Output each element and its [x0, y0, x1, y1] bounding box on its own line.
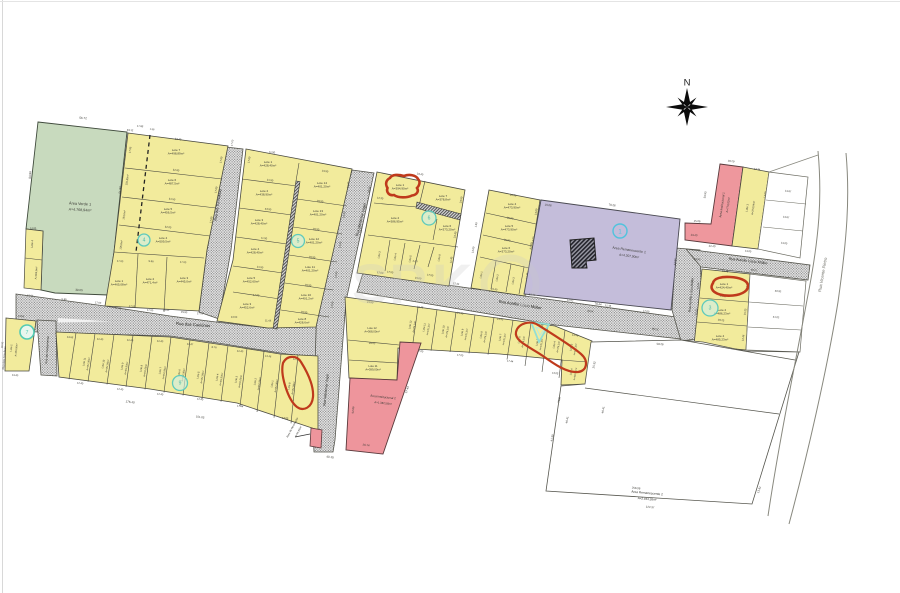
svg-text:A=456,5m²: A=456,5m²	[161, 210, 176, 214]
svg-text:A=428,40m²: A=428,40m²	[260, 163, 276, 167]
svg-text:A=473,90m²: A=473,90m²	[501, 227, 517, 231]
svg-text:22.40: 22.40	[709, 244, 716, 248]
svg-text:26.00: 26.00	[369, 341, 376, 346]
svg-text:11.45: 11.45	[265, 318, 272, 322]
svg-text:33.12: 33.12	[127, 128, 134, 133]
svg-text:40.15: 40.15	[326, 455, 334, 460]
svg-text:A=401,20m²: A=401,20m²	[306, 240, 322, 244]
svg-text:A=428,40m²: A=428,40m²	[251, 221, 267, 225]
svg-text:52.60: 52.60	[173, 168, 180, 173]
svg-text:A=401,20m²: A=401,20m²	[314, 184, 330, 188]
svg-text:12.47: 12.47	[187, 342, 194, 346]
svg-text:84.96: 84.96	[28, 171, 33, 179]
svg-text:122.37: 122.37	[646, 505, 655, 510]
svg-text:256.96: 256.96	[632, 486, 641, 491]
svg-text:Lote 1: Lote 1	[9, 344, 14, 352]
svg-text:12.40: 12.40	[157, 339, 164, 343]
svg-text:17.00: 17.00	[115, 306, 122, 310]
svg-text:18.29: 18.29	[728, 159, 736, 164]
svg-text:A=509,5m²: A=509,5m²	[156, 239, 171, 243]
svg-text:14.67: 14.67	[785, 189, 792, 194]
svg-text:17.00: 17.00	[147, 308, 154, 312]
svg-text:3: 3	[709, 306, 712, 312]
svg-text:14.00: 14.00	[231, 315, 238, 319]
svg-text:11.50: 11.50	[261, 236, 268, 241]
svg-text:A=378,8m²: A=378,8m²	[436, 197, 451, 201]
svg-text:58.26: 58.26	[656, 342, 664, 347]
svg-text:5: 5	[297, 239, 300, 245]
svg-text:A=498,89m²: A=498,89m²	[168, 151, 184, 155]
svg-text:A=373,20m²: A=373,20m²	[439, 227, 455, 231]
svg-text:39.65: 39.65	[75, 288, 83, 292]
svg-text:A=438,90m²: A=438,90m²	[256, 192, 272, 196]
svg-text:Lote 4: Lote 4	[30, 239, 35, 247]
svg-text:17.00: 17.00	[95, 300, 102, 304]
svg-text:K: K	[432, 252, 472, 315]
svg-text:12.40: 12.40	[237, 349, 244, 353]
svg-text:A=401,2m²: A=401,2m²	[299, 296, 314, 300]
svg-text:A=424,40m²: A=424,40m²	[716, 285, 732, 289]
svg-text:A=428,40m²: A=428,40m²	[247, 250, 263, 254]
svg-text:51.50: 51.50	[169, 197, 176, 202]
svg-text:13.67: 13.67	[783, 215, 790, 220]
svg-text:15.90: 15.90	[181, 310, 188, 314]
svg-text:A=471,4m²: A=471,4m²	[143, 280, 158, 284]
svg-text:40.92: 40.92	[775, 289, 782, 294]
svg-text:12.40: 12.40	[97, 337, 104, 341]
svg-text:26.23: 26.23	[718, 318, 725, 323]
svg-text:17.00: 17.00	[197, 311, 204, 315]
svg-text:N: N	[684, 78, 691, 89]
svg-text:17.60: 17.60	[27, 293, 34, 297]
svg-text:12.40: 12.40	[127, 338, 134, 342]
svg-text:4: 4	[143, 238, 146, 244]
svg-text:A=485,23m²: A=485,23m²	[712, 337, 728, 341]
svg-text:17.83: 17.83	[137, 124, 144, 129]
svg-text:7: 7	[26, 330, 29, 336]
svg-text:52.86: 52.86	[351, 406, 356, 414]
svg-text:15.06: 15.06	[694, 219, 701, 223]
svg-text:14.00: 14.00	[745, 249, 752, 254]
svg-text:14.00: 14.00	[781, 241, 788, 246]
svg-text:17.00: 17.00	[180, 260, 187, 264]
svg-text:17.00: 17.00	[129, 304, 136, 308]
svg-text:23.40: 23.40	[691, 233, 698, 237]
svg-text:13.40: 13.40	[12, 373, 19, 377]
svg-text:9.36: 9.36	[61, 297, 67, 301]
svg-text:14.00: 14.00	[30, 227, 37, 230]
svg-text:A=452,60m²: A=452,60m²	[243, 279, 259, 283]
svg-text:9.36: 9.36	[148, 259, 154, 263]
svg-text:A=428,6m²: A=428,6m²	[295, 320, 310, 324]
svg-text:A=473,90m²: A=473,90m²	[504, 205, 520, 209]
svg-text:15.90: 15.90	[163, 308, 170, 312]
svg-text:16.46: 16.46	[722, 269, 729, 274]
svg-text:8.76: 8.76	[211, 345, 217, 349]
svg-text:52.00: 52.00	[165, 225, 172, 230]
svg-text:14.63: 14.63	[67, 335, 74, 339]
svg-text:53.40: 53.40	[175, 137, 182, 142]
svg-text:A=394,90m²: A=394,90m²	[392, 186, 408, 190]
svg-text:A=401,20m²: A=401,20m²	[302, 268, 318, 272]
svg-text:A=465,08m²: A=465,08m²	[111, 282, 127, 286]
svg-text:SP: SP	[352, 252, 427, 315]
svg-text:17.00: 17.00	[117, 259, 124, 263]
svg-text:A=487,5m²: A=487,5m²	[165, 181, 180, 185]
svg-text:13.34: 13.34	[754, 167, 761, 172]
svg-text:9: 9	[179, 381, 182, 387]
svg-text:56.72: 56.72	[79, 116, 87, 121]
svg-text:A=401,20m²: A=401,20m²	[310, 212, 326, 216]
svg-text:6: 6	[428, 216, 431, 222]
svg-text:A=452,6m²: A=452,6m²	[240, 305, 255, 309]
svg-text:26.74: 26.74	[362, 443, 370, 448]
svg-text:11.50: 11.50	[269, 150, 276, 155]
svg-text:A=373,20m²: A=373,20m²	[498, 249, 514, 253]
svg-text:41.02: 41.02	[773, 315, 780, 320]
svg-text:14.63: 14.63	[18, 314, 25, 318]
svg-text:A=368,00m²: A=368,00m²	[364, 329, 379, 333]
svg-text:A=386,95m²: A=386,95m²	[387, 219, 403, 223]
svg-text:A=445,0m²: A=445,0m²	[177, 279, 192, 283]
svg-text:A=399,00m²: A=399,00m²	[365, 367, 380, 371]
